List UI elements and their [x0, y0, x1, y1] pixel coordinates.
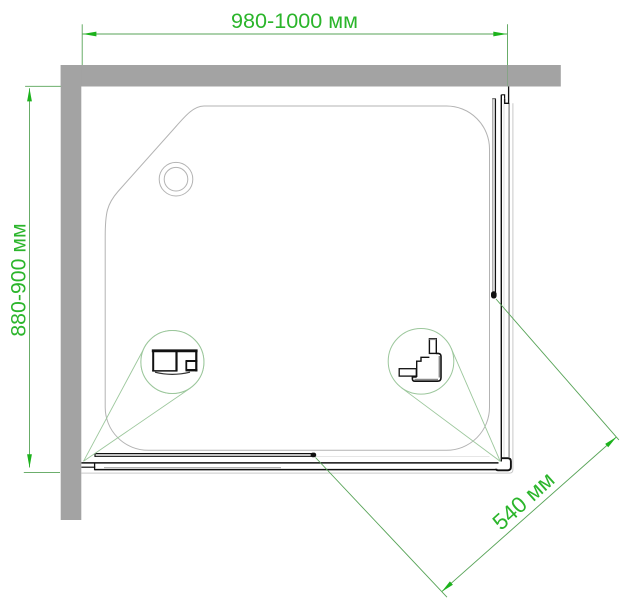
svg-text:980-1000 мм: 980-1000 мм [231, 8, 358, 33]
svg-text:880-900 мм: 880-900 мм [7, 223, 31, 336]
